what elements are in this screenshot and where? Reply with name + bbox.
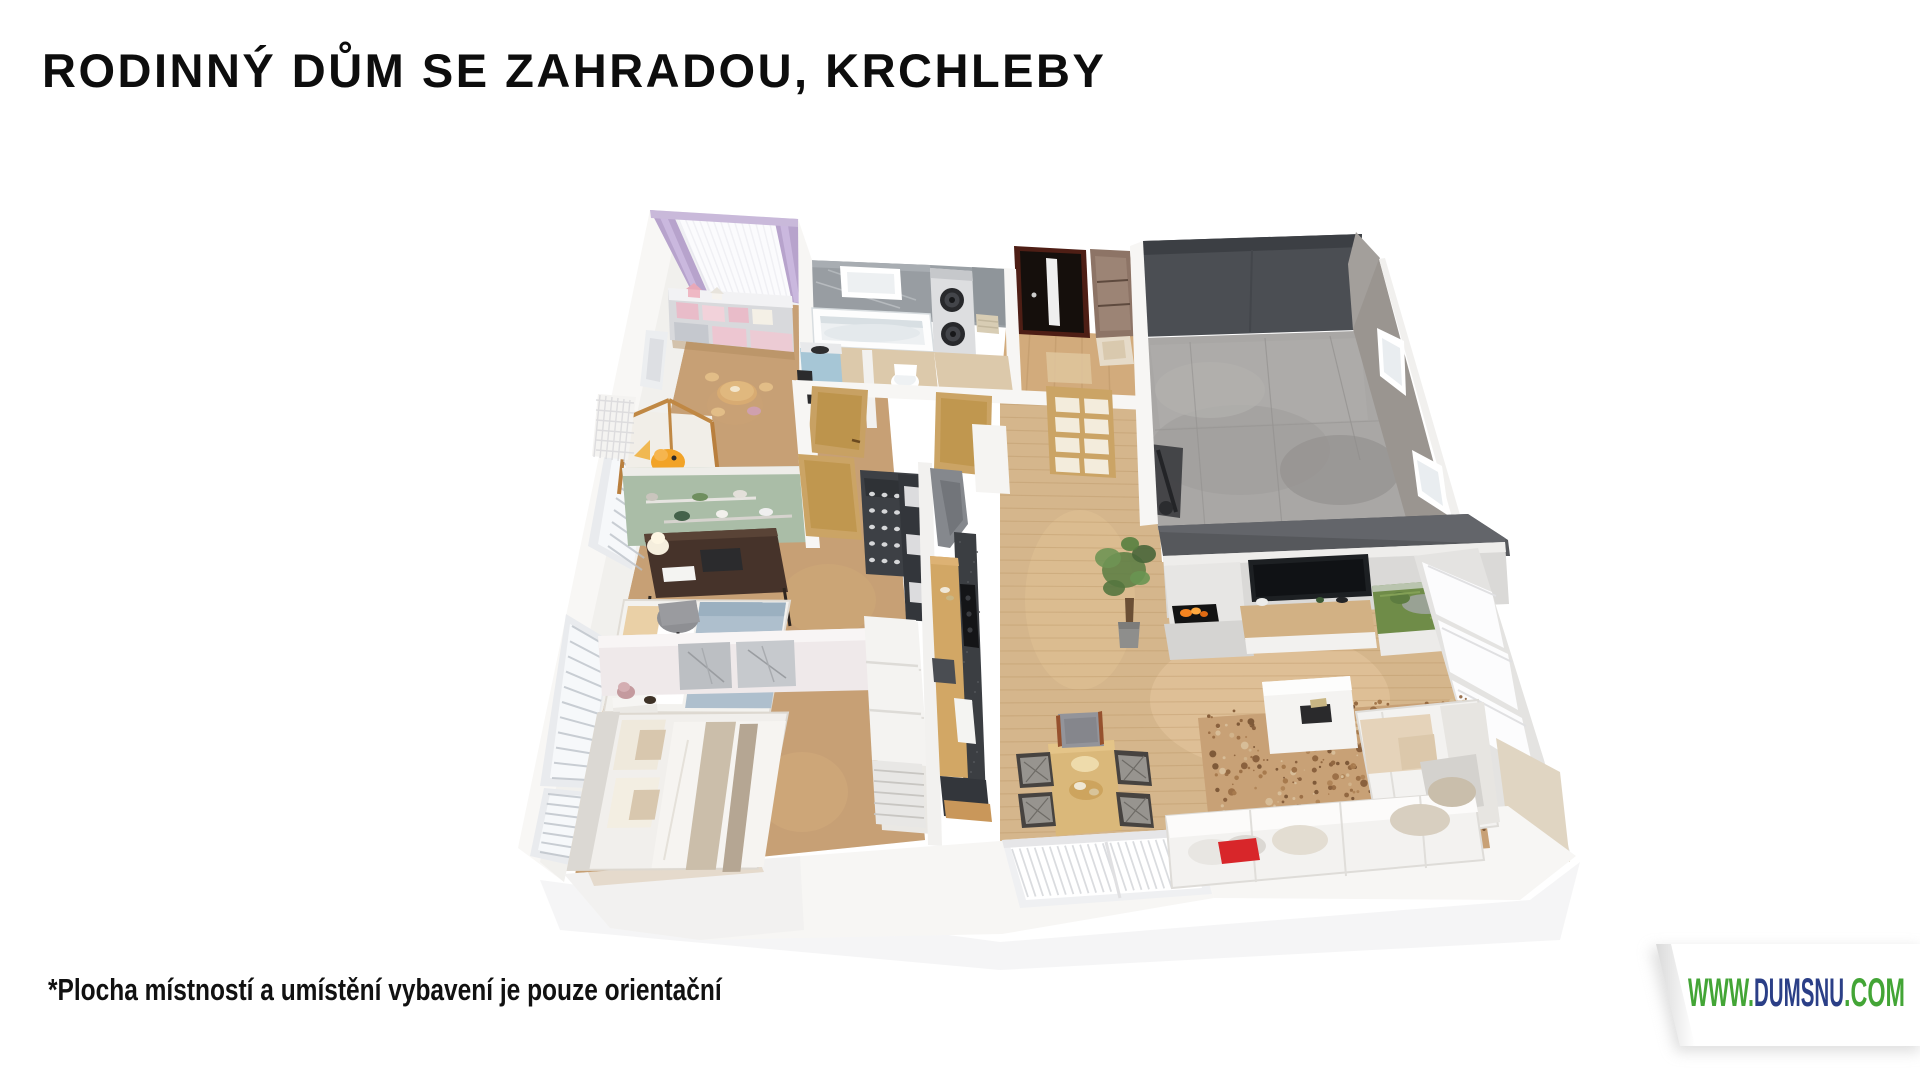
svg-text:WWW.: WWW. (1688, 971, 1754, 1015)
svg-text:DUMSNU: DUMSNU (1754, 971, 1844, 1015)
svg-text:.COM: .COM (1844, 971, 1905, 1015)
